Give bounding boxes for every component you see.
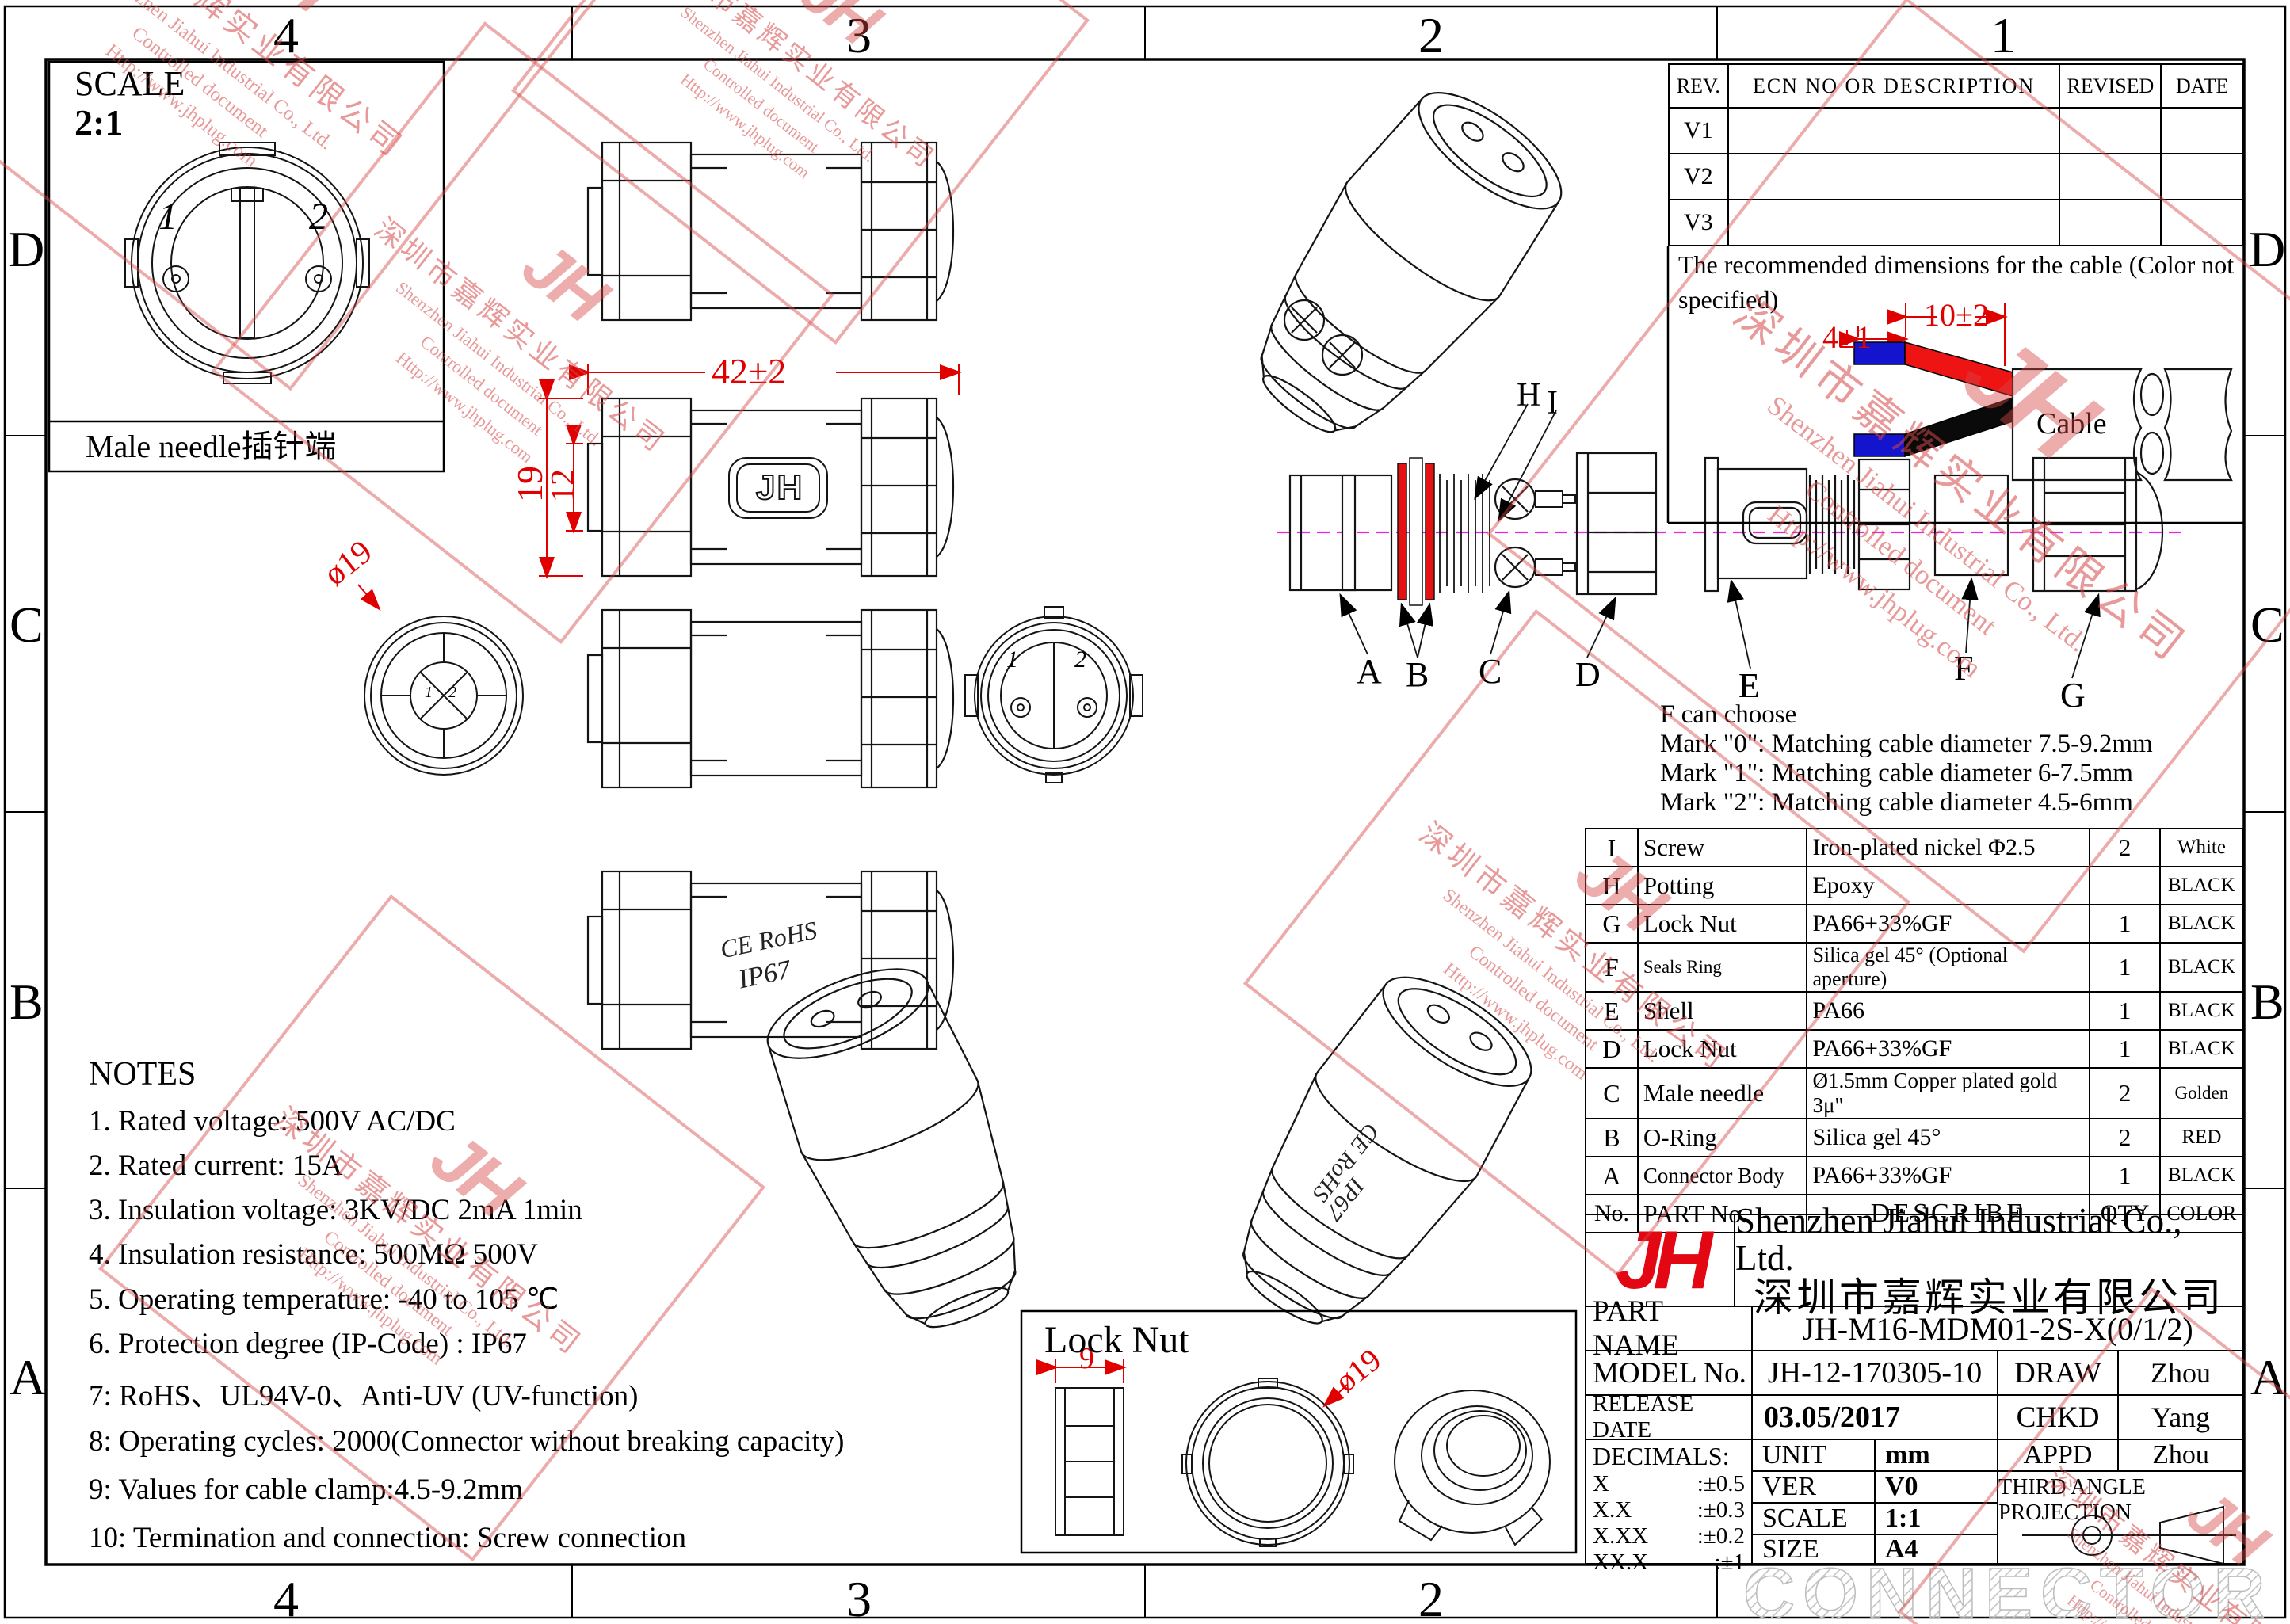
front-face-view [965, 607, 1143, 783]
part-qty: 2 [2090, 1068, 2159, 1119]
projection-cell: THIRD ANGLE PROJECTION [1997, 1470, 2244, 1565]
part-qty [2090, 867, 2159, 905]
part-qty: 2 [2090, 829, 2159, 867]
part-qty: 2 [2090, 1119, 2159, 1157]
part-describe: Silica gel 45° [1807, 1119, 2090, 1157]
scale-cell-value: 1:1 [1874, 1502, 1998, 1535]
part-describe: Silica gel 45° (Optional aperture) [1807, 943, 2090, 992]
appd-label: APPD [1997, 1439, 2119, 1472]
notes-block: NOTES 1. Rated voltage: 500V AC/DC 2. Ra… [89, 1055, 844, 1565]
rev-header-revised: REVISED [2059, 64, 2161, 108]
table-row: F Seals Ring Silica gel 45° (Optional ap… [1586, 943, 2243, 992]
size-label: SIZE [1751, 1534, 1876, 1565]
rev-v3: V3 [1669, 200, 1728, 246]
male-needle-face-view [125, 143, 369, 383]
cable-dim-4: 4±1 [1822, 322, 1872, 353]
part-name-value: JH-M16-MDM01-2S-X(0/1/2) [1751, 1306, 2244, 1351]
table-row: B O-Ring Silica gel 45° 2 RED [1586, 1119, 2243, 1157]
release-date-value: 03.05/2017 [1751, 1394, 1998, 1440]
part-no: A [1586, 1157, 1638, 1195]
part-name: Lock Nut [1638, 1030, 1807, 1068]
part-qty: 1 [2090, 943, 2159, 992]
part-color: BLACK [2160, 1157, 2243, 1195]
part-no: F [1586, 943, 1638, 992]
unit-label: UNIT [1751, 1439, 1876, 1472]
part-no: C [1586, 1068, 1638, 1119]
part-color: RED [2160, 1119, 2243, 1157]
pin2-front-view: 2 [1074, 648, 1086, 672]
part-describe: Ø1.5mm Copper plated gold 3μ" [1807, 1068, 2090, 1119]
title-block: JH Shenzhen Jiahui Industrial Co., Ltd. … [1585, 1214, 2244, 1565]
part-qty: 1 [2090, 992, 2159, 1030]
part-no: D [1586, 1030, 1638, 1068]
table-row: D Lock Nut PA66+33%GF 1 BLACK [1586, 1030, 2243, 1068]
part-name: O-Ring [1638, 1119, 1807, 1157]
ver-value: V0 [1874, 1470, 1998, 1504]
part-name: Male needle [1638, 1068, 1807, 1119]
zone-bottom-2: 2 [1418, 1570, 1444, 1624]
zone-left-b: B [10, 973, 44, 1031]
scale-label: SCALE [74, 67, 185, 101]
part-no: G [1586, 905, 1638, 943]
note-line: 9: Values for cable clamp:4.5-9.2mm [89, 1473, 844, 1507]
part-name: Connector Body [1638, 1157, 1807, 1195]
note-line: 1. Rated voltage: 500V AC/DC [89, 1104, 844, 1138]
cable-note-line2: specified) [1678, 287, 1778, 312]
part-color: BLACK [2160, 1030, 2243, 1068]
draw-label: DRAW [1997, 1350, 2119, 1396]
pin1-label-large: 1 [158, 198, 177, 236]
notes-title: NOTES [89, 1055, 844, 1093]
zone-right-c: C [2250, 596, 2284, 654]
chkd-label: CHKD [1997, 1394, 2119, 1440]
scale-value: 2:1 [74, 105, 123, 141]
cable-note-line1: The recommended dimensions for the cable… [1678, 252, 2234, 277]
part-describe: PA66+33%GF [1807, 1157, 2090, 1195]
table-row: H Potting Epoxy BLACK [1586, 867, 2243, 905]
draw-value: Zhou [2117, 1350, 2244, 1396]
revision-table: REV. ECN NO OR DESCRIPTION REVISED DATE … [1668, 63, 2244, 246]
rev-v2: V2 [1669, 154, 1728, 200]
zone-right-a: A [2250, 1348, 2287, 1407]
part-name: Lock Nut [1638, 905, 1807, 943]
lock-nut-title: Lock Nut [1044, 1321, 1189, 1359]
exploded-view [1277, 404, 2184, 678]
size-value: A4 [1874, 1534, 1998, 1565]
part-describe: PA66+33%GF [1807, 1030, 2090, 1068]
part-qty: 1 [2090, 905, 2159, 943]
pin2-label-large: 2 [309, 198, 328, 236]
dim-19: 19 [512, 466, 548, 502]
rev-row-v3: V3 [1669, 200, 2243, 246]
chkd-value: Yang [2117, 1394, 2244, 1440]
cable-dim-10: 10±2 [1924, 299, 1989, 331]
note-line: 7: RoHS、UL94V-0、Anti-UV (UV-function) [89, 1371, 844, 1414]
zone-top-4: 4 [273, 6, 299, 65]
part-color: BLACK [2160, 905, 2243, 943]
rear-circular-view [364, 616, 523, 775]
company-names: Shenzhen Jiahui Industrial Co., Ltd. 深圳市… [1734, 1214, 2244, 1307]
model-label: MODEL No. [1585, 1350, 1753, 1396]
part-no: E [1586, 992, 1638, 1030]
part-qty: 1 [2090, 1157, 2159, 1195]
part-no: I [1586, 829, 1638, 867]
exploded-label-a: A [1357, 654, 1382, 689]
exploded-label-e: E [1738, 669, 1760, 703]
exploded-label-c: C [1479, 654, 1502, 689]
part-name: Seals Ring [1638, 943, 1807, 992]
rev-row-v1: V1 [1669, 108, 2243, 154]
zone-top-1: 1 [1990, 6, 2016, 65]
note-line: 6. Protection degree (IP-Code) : IP67 [89, 1327, 844, 1361]
ver-label: VER [1751, 1470, 1876, 1504]
part-no: B [1586, 1119, 1638, 1157]
zone-top-3: 3 [846, 6, 872, 65]
lock-nut-dims [1055, 1359, 1347, 1405]
decimals-block: DECIMALS: X:±0.5 X.X:±0.3 X.XX:±0.2 XX.X… [1585, 1439, 1753, 1565]
note-line: 2. Rated current: 15A [89, 1149, 844, 1183]
exploded-label-f: F [1954, 651, 1973, 686]
zone-bottom-3: 3 [846, 1570, 872, 1624]
part-name: Potting [1638, 867, 1807, 905]
zone-bottom-4: 4 [273, 1570, 299, 1624]
rev-row-v2: V2 [1669, 154, 2243, 200]
f-choose-mark1: Mark "1": Matching cable diameter 6-7.5m… [1660, 759, 2153, 788]
part-describe: Epoxy [1807, 867, 2090, 905]
zone-right-d: D [2249, 220, 2285, 279]
rev-header-date: DATE [2161, 64, 2243, 108]
exploded-label-d: D [1575, 658, 1601, 692]
f-choose-mark0: Mark "0": Matching cable diameter 7.5-9.… [1660, 730, 2153, 759]
part-describe: PA66+33%GF [1807, 905, 2090, 943]
f-choose-block: F can choose Mark "0": Matching cable di… [1660, 700, 2153, 818]
model-value: JH-12-170305-10 [1751, 1350, 1998, 1396]
part-color: BLACK [2160, 867, 2243, 905]
pin2-rear-view: 2 [448, 684, 456, 700]
cable-graphic [1854, 303, 2231, 480]
zone-left-c: C [10, 596, 44, 654]
jh-mark-view2: JH [756, 471, 803, 505]
note-line: 3. Insulation voltage: 3KV/DC 2mA 1min [89, 1193, 844, 1227]
iso-view-bottom-right [1199, 952, 1555, 1359]
note-line: 8: Operating cycles: 2000(Connector with… [89, 1424, 844, 1458]
rev-header-ecn: ECN NO OR DESCRIPTION [1728, 64, 2060, 108]
part-color: BLACK [2160, 943, 2243, 992]
exploded-label-b: B [1406, 658, 1429, 692]
part-color: BLACK [2160, 992, 2243, 1030]
part-name: Screw [1638, 829, 1807, 867]
lock-nut-views [1055, 1378, 1550, 1546]
part-qty: 1 [2090, 1030, 2159, 1068]
parts-table: I Screw Iron-plated nickel Φ2.5 2 White … [1585, 828, 2244, 1233]
cable-label: Cable [2036, 409, 2107, 439]
release-date-label: RELEASE DATE [1585, 1394, 1753, 1440]
male-needle-caption: Male needle插针端 [86, 431, 337, 463]
dia19-leader [358, 585, 379, 608]
rev-v1: V1 [1669, 108, 1728, 154]
jh-logo-text: JH [1616, 1214, 1705, 1308]
part-describe: PA66 [1807, 992, 2090, 1030]
note-line: 5. Operating temperature: -40 to 105 ℃ [89, 1282, 844, 1317]
f-choose-mark2: Mark "2": Matching cable diameter 4.5-6m… [1660, 788, 2153, 818]
pin1-front-view: 1 [1006, 648, 1018, 672]
table-row: A Connector Body PA66+33%GF 1 BLACK [1586, 1157, 2243, 1195]
zone-top-2: 2 [1418, 6, 1444, 65]
part-name: Shell [1638, 992, 1807, 1030]
note-line: 4. Insulation resistance: 500MΩ 500V [89, 1237, 844, 1271]
dim-42: 42±2 [712, 353, 786, 390]
zone-right-b: B [2250, 973, 2284, 1031]
part-describe: Iron-plated nickel Φ2.5 [1807, 829, 2090, 867]
table-row: I Screw Iron-plated nickel Φ2.5 2 White [1586, 829, 2243, 867]
table-row: E Shell PA66 1 BLACK [1586, 992, 2243, 1030]
rev-header-rev: REV. [1669, 64, 1728, 108]
exploded-label-h: H [1517, 379, 1540, 412]
part-name-label: PART NAME [1585, 1306, 1753, 1351]
engineering-drawing-sheet: CONNECTOR 4 3 2 1 4 3 2 D C B A D C B A … [0, 0, 2290, 1624]
dim-12: 12 [547, 469, 580, 502]
table-row: G Lock Nut PA66+33%GF 1 BLACK [1586, 905, 2243, 943]
connector-watermark-text: CONNECTOR [1743, 1554, 2273, 1624]
table-row: C Male needle Ø1.5mm Copper plated gold … [1586, 1068, 2243, 1119]
company-name-en: Shenzhen Jiahui Industrial Co., Ltd. [1735, 1203, 2242, 1278]
zone-left-a: A [10, 1348, 46, 1407]
exploded-label-i: I [1547, 387, 1558, 420]
part-color: Golden [2160, 1068, 2243, 1119]
part-color: White [2160, 829, 2243, 867]
pin1-rear-view: 1 [425, 684, 433, 700]
company-logo: JH [1585, 1214, 1735, 1307]
unit-value: mm [1874, 1439, 1998, 1472]
f-choose-title: F can choose [1660, 700, 2153, 730]
appd-value: Zhou [2117, 1439, 2244, 1472]
zone-left-d: D [8, 220, 44, 279]
note-line: 10: Termination and connection: Screw co… [89, 1521, 844, 1555]
part-no: H [1586, 867, 1638, 905]
scale-cell-label: SCALE [1751, 1502, 1876, 1535]
